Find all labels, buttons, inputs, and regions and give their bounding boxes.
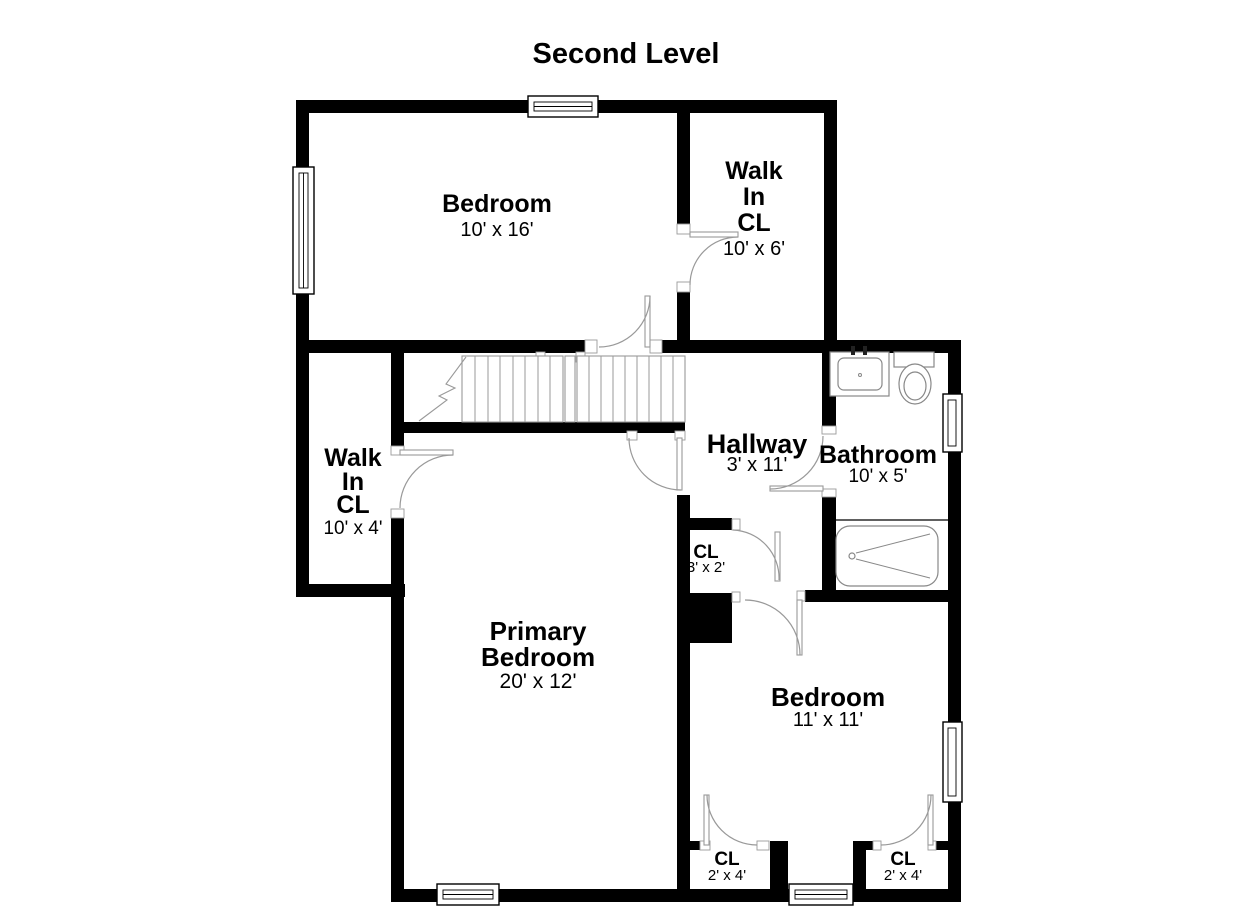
room-dims-closet-hall: 3' x 2' <box>687 559 725 576</box>
room-dims-walkin-left: 10' x 4' <box>323 518 382 539</box>
stair-rail-divider <box>565 356 575 422</box>
room-label-bathroom: Bathroom <box>819 441 937 469</box>
faucet <box>851 346 855 355</box>
window-bottom-primary <box>437 884 499 905</box>
wall-segment <box>300 340 586 353</box>
wall-segment <box>677 113 690 233</box>
door-jamb <box>873 841 881 850</box>
door-bedroom-top <box>599 296 650 347</box>
room-dims-closet-bottom-left: 2' x 4' <box>708 867 746 884</box>
faucet <box>863 346 867 355</box>
room-label-bedroom-right: Bedroom <box>771 682 885 712</box>
stair-break-line <box>419 357 466 421</box>
walls <box>296 100 961 902</box>
door-jamb <box>822 489 836 497</box>
wall-segment <box>296 584 405 597</box>
page-title: Second Level <box>533 38 720 70</box>
door-stair-hall <box>629 438 682 490</box>
room-dims-hallway: 3' x 11' <box>727 454 788 476</box>
wall-segment <box>822 497 836 592</box>
room-label-primary: Bedroom <box>481 642 595 672</box>
wall-segment <box>677 292 690 340</box>
wall-segment <box>824 100 837 340</box>
wall-segment <box>853 841 866 902</box>
room-label-walkin-top: In <box>743 183 765 211</box>
door-jamb <box>650 340 662 353</box>
window-left <box>293 167 314 294</box>
door-jamb <box>677 224 690 234</box>
door-closet-bottom-left <box>704 795 757 845</box>
chimney-block <box>685 593 732 643</box>
labels: Second Level Bedroom 10' x 16' Walk In C… <box>323 38 937 884</box>
room-dims-walkin-top: 10' x 6' <box>723 238 785 260</box>
room-label-walkin-top: CL <box>737 209 770 237</box>
room-dims-bedroom-top: 10' x 16' <box>460 219 533 241</box>
door-jamb <box>391 509 404 518</box>
room-label-walkin-top: Walk <box>725 157 783 185</box>
wall-segment <box>391 518 404 584</box>
wall-segment <box>936 841 948 850</box>
wall-segment <box>391 584 404 902</box>
floor-plan: Second Level Bedroom 10' x 16' Walk In C… <box>0 0 1256 914</box>
door-jamb <box>732 592 740 602</box>
room-dims-closet-bottom-right: 2' x 4' <box>884 867 922 884</box>
room-dims-bathroom: 10' x 5' <box>848 466 907 487</box>
window-top <box>528 96 598 117</box>
room-dims-primary: 20' x 12' <box>500 670 577 693</box>
door-closet-bottom-right <box>881 795 933 845</box>
toilet <box>894 352 934 404</box>
window-bathroom <box>943 394 962 452</box>
door-jamb <box>822 426 836 434</box>
stair-flight-right <box>577 356 685 422</box>
window-bottom-bedroom <box>789 884 853 905</box>
wall-segment <box>685 518 732 530</box>
window-bedroom-right <box>943 722 962 802</box>
wall-segment <box>770 841 788 902</box>
door-jamb <box>585 340 597 353</box>
room-dims-bedroom-right: 11' x 11' <box>793 709 863 731</box>
wall-segment <box>866 841 873 850</box>
wall-segment <box>662 340 961 353</box>
wall-segment <box>391 422 685 433</box>
door-jamb <box>677 282 690 292</box>
floor-plan-canvas: Second Level Bedroom 10' x 16' Walk In C… <box>0 0 1256 914</box>
door-walkin-left <box>400 450 453 508</box>
wall-segment <box>677 495 690 889</box>
door-bedroom-right <box>745 600 802 655</box>
door-jamb <box>757 841 769 850</box>
door-jamb <box>732 519 740 530</box>
room-label-bedroom-top: Bedroom <box>442 190 552 218</box>
door-closet-hall <box>733 530 780 581</box>
room-label-walkin-left: CL <box>336 491 369 519</box>
wall-segment <box>690 841 700 850</box>
bathtub <box>836 526 938 586</box>
staircase <box>419 356 685 422</box>
sink <box>830 346 889 396</box>
